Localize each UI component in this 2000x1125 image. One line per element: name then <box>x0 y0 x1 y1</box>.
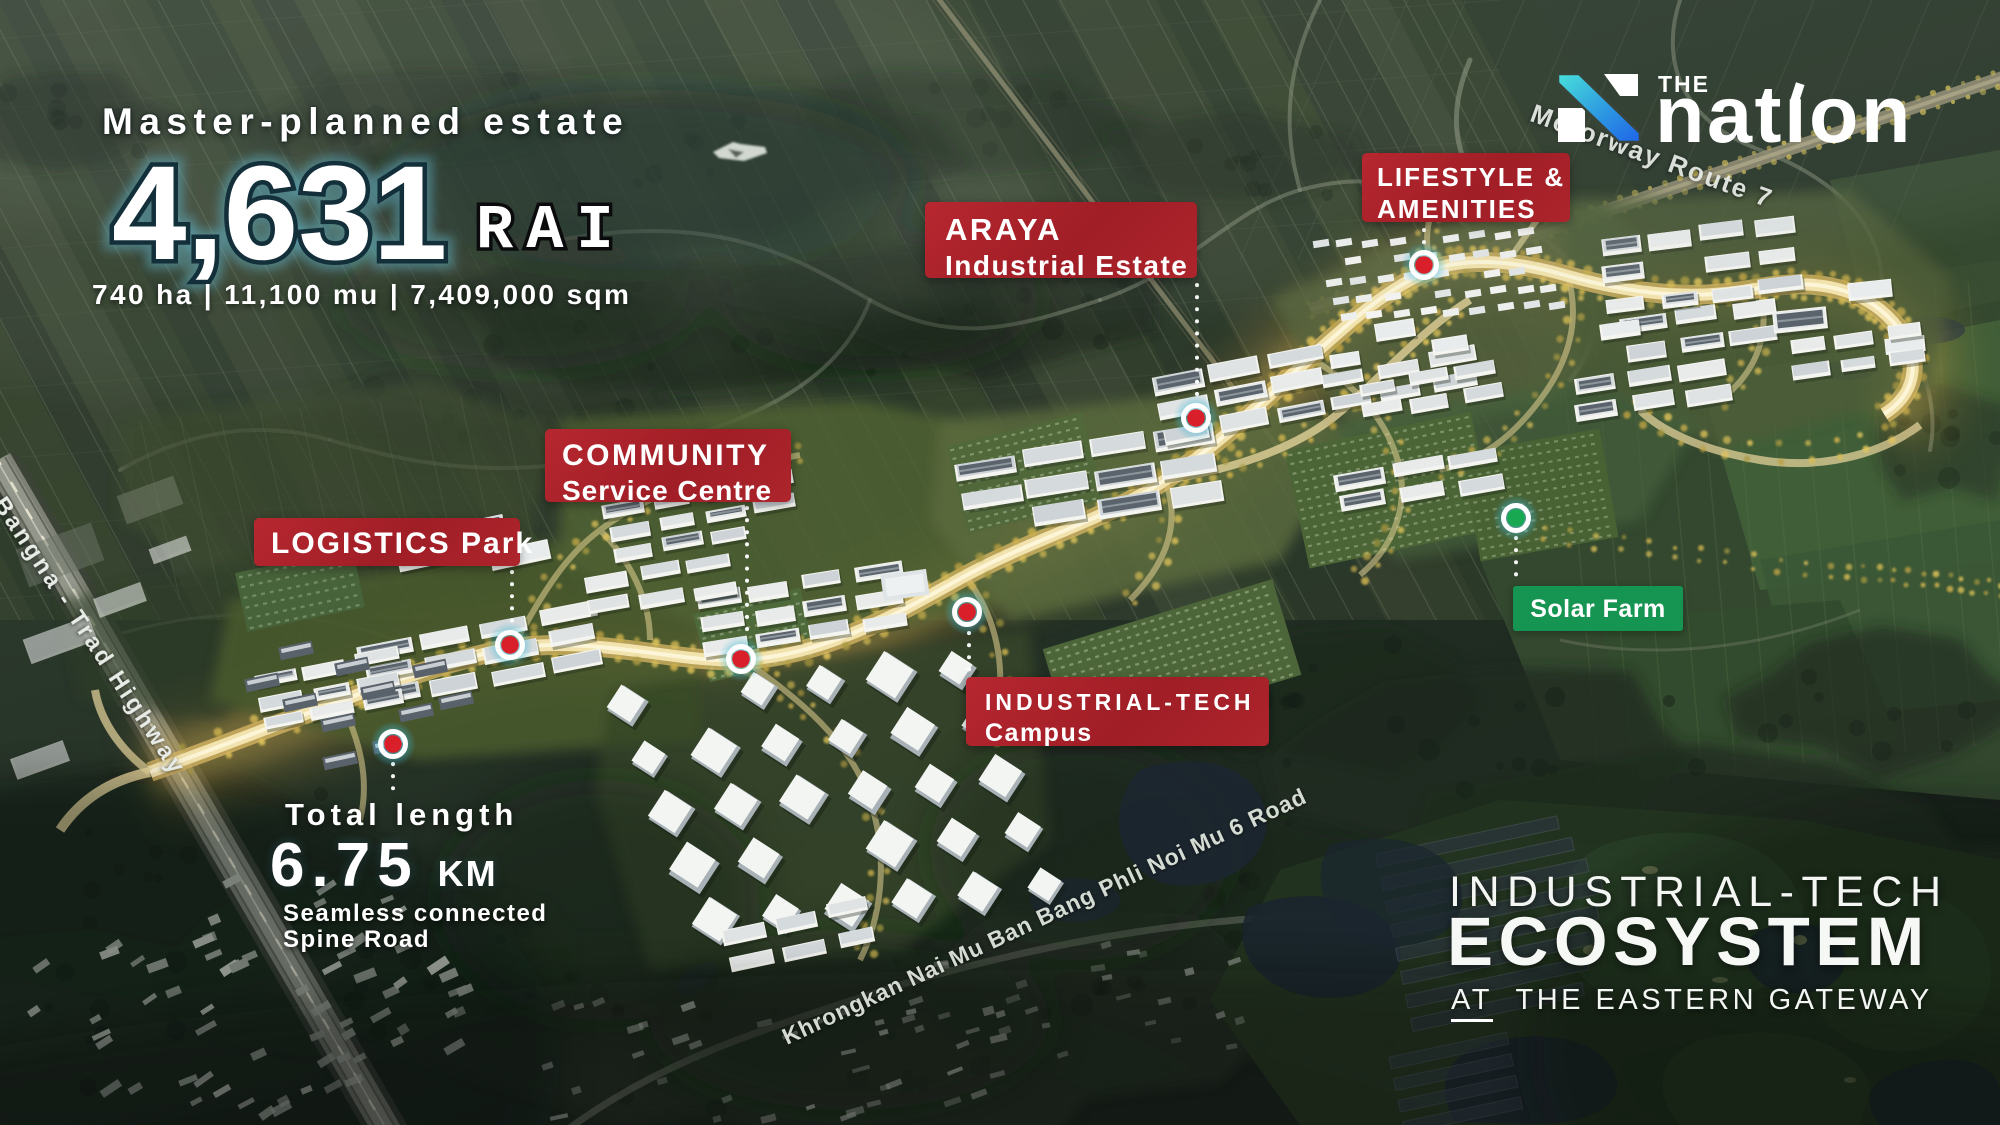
svg-text:RAI: RAI <box>476 195 627 266</box>
svg-text:4,631: 4,631 <box>112 139 447 288</box>
svg-text:natıon: natıon <box>1655 70 1913 155</box>
